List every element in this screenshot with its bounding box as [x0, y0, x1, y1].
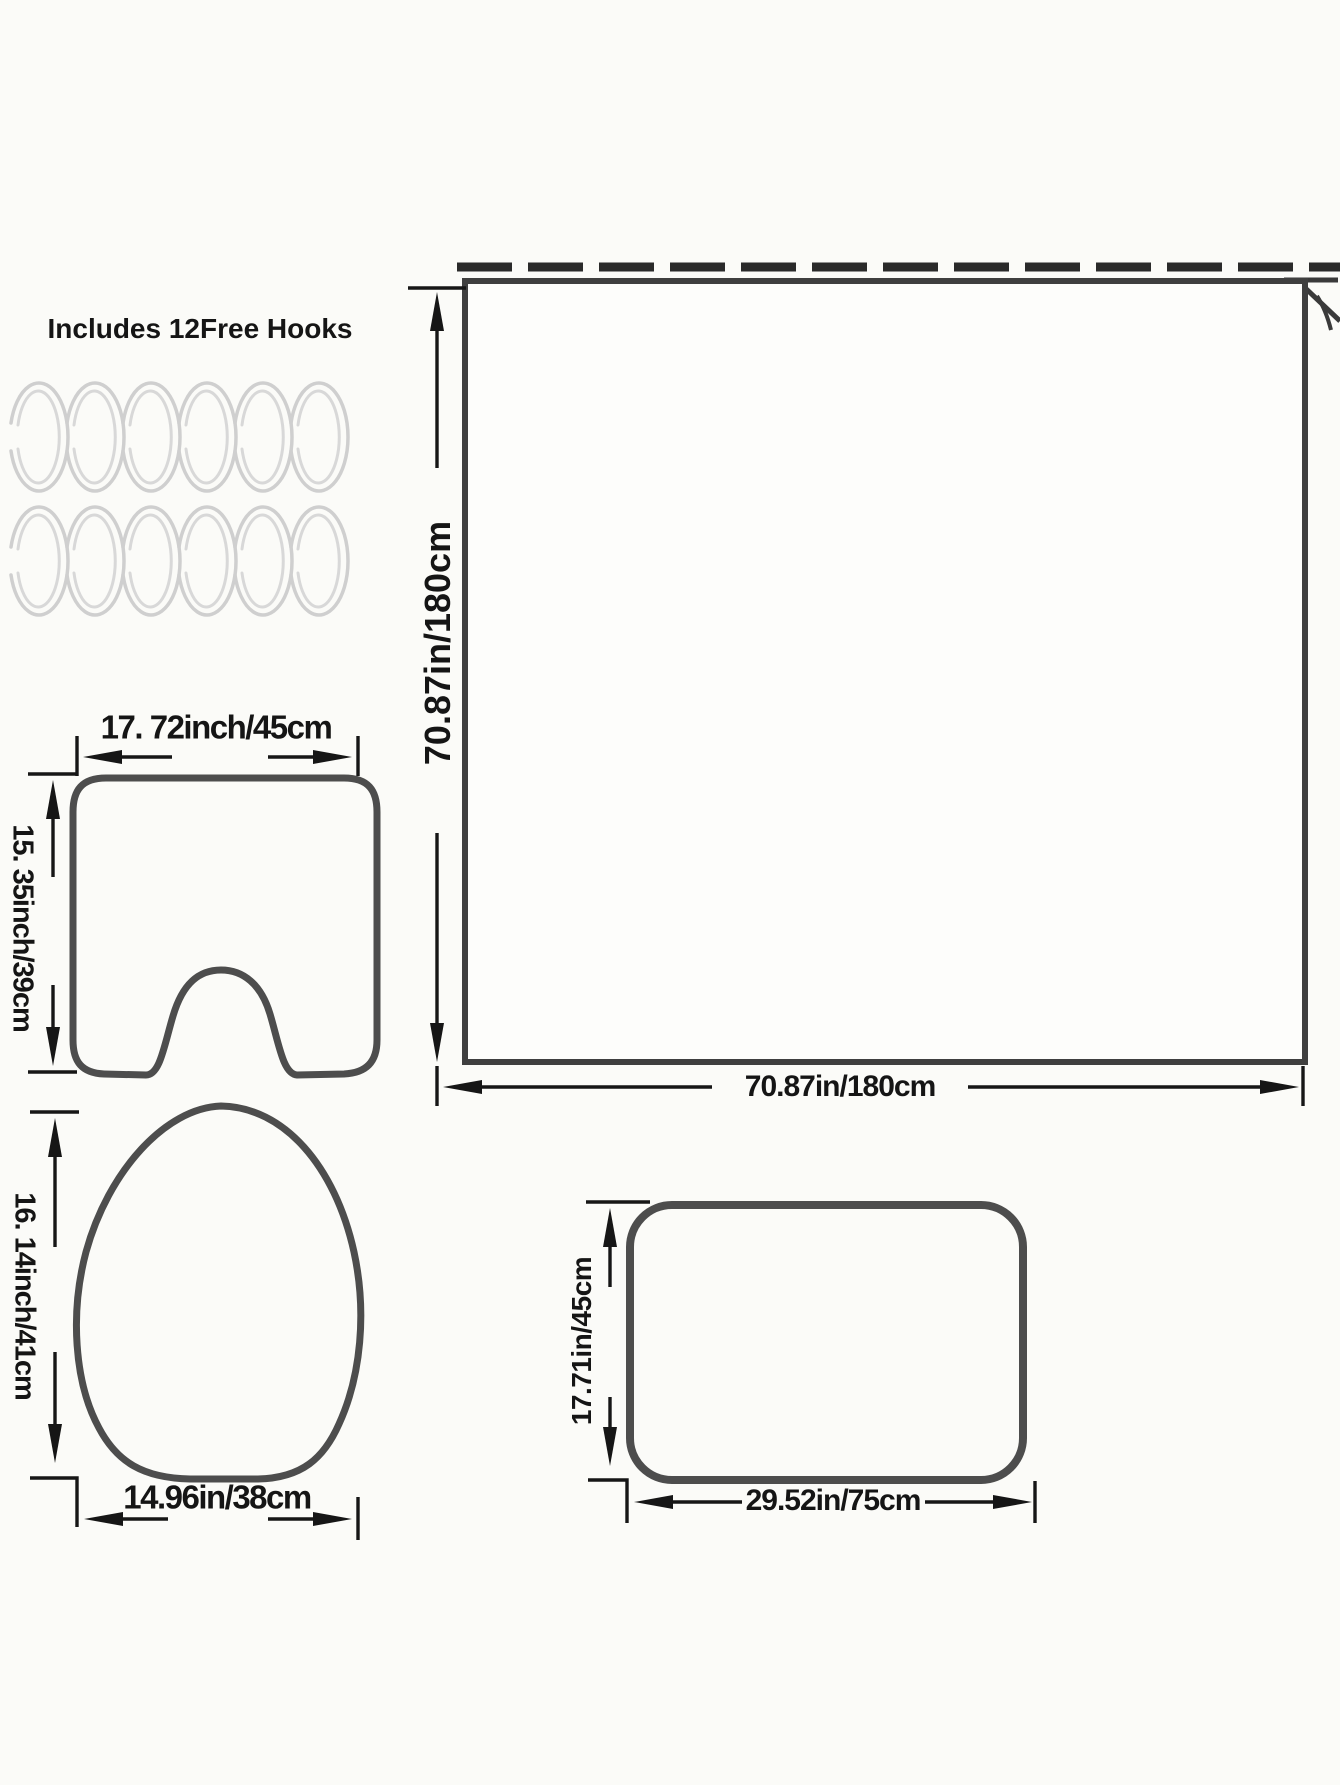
hook-ring-icon	[11, 507, 68, 615]
hook-ring-icon	[67, 383, 124, 491]
hook-ring-icon	[291, 383, 348, 491]
hook-ring-icon	[123, 383, 180, 491]
hook-rings-group	[11, 383, 348, 615]
hook-ring-icon	[67, 507, 124, 615]
contour-mat-outline	[73, 778, 377, 1075]
hook-ring-icon	[235, 507, 292, 615]
hook-ring-icon	[291, 507, 348, 615]
shower-curtain-outline	[465, 281, 1305, 1062]
hook-ring-icon	[179, 507, 236, 615]
contour-mat-height-label: 15. 35inch/39cm	[8, 824, 37, 1031]
diagram-line-art	[0, 0, 1340, 1785]
hook-ring-icon	[11, 383, 68, 491]
product-dimension-diagram: Includes 12Free Hooks 70.87in/180cm 70.8…	[0, 0, 1340, 1785]
bath-mat-height-label: 17.71in/45cm	[568, 1257, 596, 1425]
hook-ring-icon	[235, 383, 292, 491]
bath-mat-width-label: 29.52in/75cm	[746, 1486, 921, 1516]
hook-ring-icon	[123, 507, 180, 615]
bath-mat-outline	[630, 1205, 1023, 1480]
hook-ring-icon	[179, 383, 236, 491]
curtain-height-label: 70.87in/180cm	[420, 521, 456, 765]
hooks-banner-title: Includes 12Free Hooks	[47, 315, 352, 343]
curtain-width-label: 70.87in/180cm	[745, 1072, 935, 1102]
lid-cover-height-label: 16. 14inch/41cm	[10, 1192, 39, 1399]
lid-cover-width-label: 14.96in/38cm	[123, 1481, 310, 1514]
contour-mat-width-label: 17. 72inch/45cm	[101, 711, 332, 744]
lid-cover-outline	[76, 1106, 360, 1479]
